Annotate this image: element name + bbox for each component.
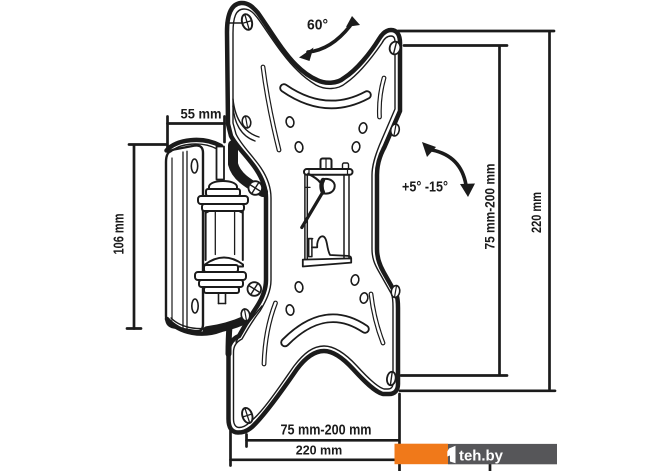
svg-text:220 mm: 220 mm	[528, 192, 544, 233]
svg-text:55 mm: 55 mm	[181, 105, 222, 121]
svg-text:75 mm-200 mm: 75 mm-200 mm	[281, 422, 372, 438]
svg-text:teh.by: teh.by	[459, 448, 504, 465]
svg-text:60°: 60°	[307, 17, 328, 34]
svg-text:106 mm: 106 mm	[112, 214, 128, 255]
svg-text:+5° -15°: +5° -15°	[402, 179, 448, 196]
svg-text:220 mm: 220 mm	[296, 443, 343, 458]
svg-text:75 mm-200 mm: 75 mm-200 mm	[482, 164, 498, 250]
